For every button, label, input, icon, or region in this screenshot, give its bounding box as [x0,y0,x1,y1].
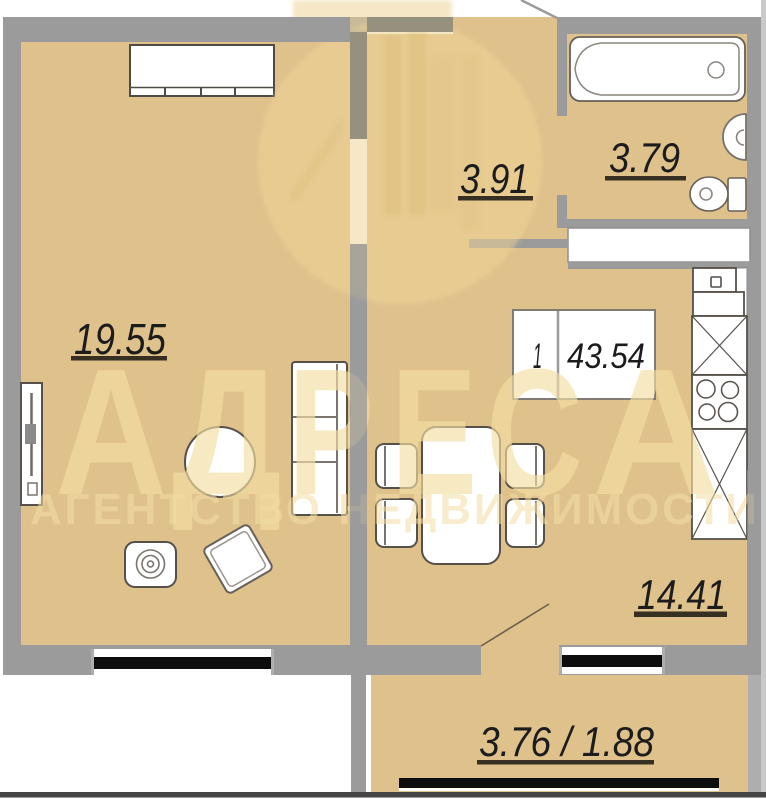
svg-text:14.41: 14.41 [637,571,726,618]
svg-text:3.76 / 1.88: 3.76 / 1.88 [479,718,655,765]
svg-text:43.54: 43.54 [567,337,645,376]
svg-text:3.91: 3.91 [460,155,529,202]
svg-text:АГЕНТСТВО НЕДВИЖИМОСТИ: АГЕНТСТВО НЕДВИЖИМОСТИ [30,485,757,534]
svg-text:1: 1 [533,337,542,376]
svg-text:3.79: 3.79 [609,134,680,181]
